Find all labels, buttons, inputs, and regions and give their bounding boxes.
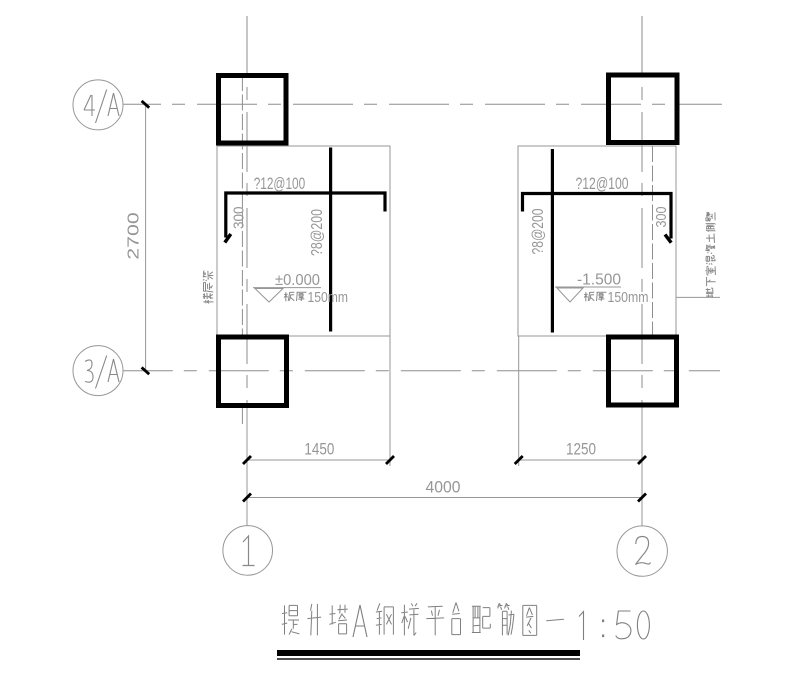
svg-text:150mm: 150mm <box>608 290 649 306</box>
svg-text:-1.500: -1.500 <box>577 272 621 289</box>
svg-text:?8@200: ?8@200 <box>530 208 547 254</box>
svg-text:4000: 4000 <box>426 478 461 497</box>
svg-text:300: 300 <box>232 207 248 230</box>
svg-text:300: 300 <box>654 207 670 228</box>
svg-text:150mm: 150mm <box>308 290 349 306</box>
svg-text:2700: 2700 <box>125 212 142 260</box>
svg-text:?12@100: ?12@100 <box>254 174 305 193</box>
svg-text:1250: 1250 <box>566 440 596 459</box>
svg-text:1450: 1450 <box>304 440 334 459</box>
svg-text:?8@200: ?8@200 <box>309 209 326 256</box>
svg-text:±0.000: ±0.000 <box>275 272 320 289</box>
svg-text:?12@100: ?12@100 <box>576 174 629 193</box>
